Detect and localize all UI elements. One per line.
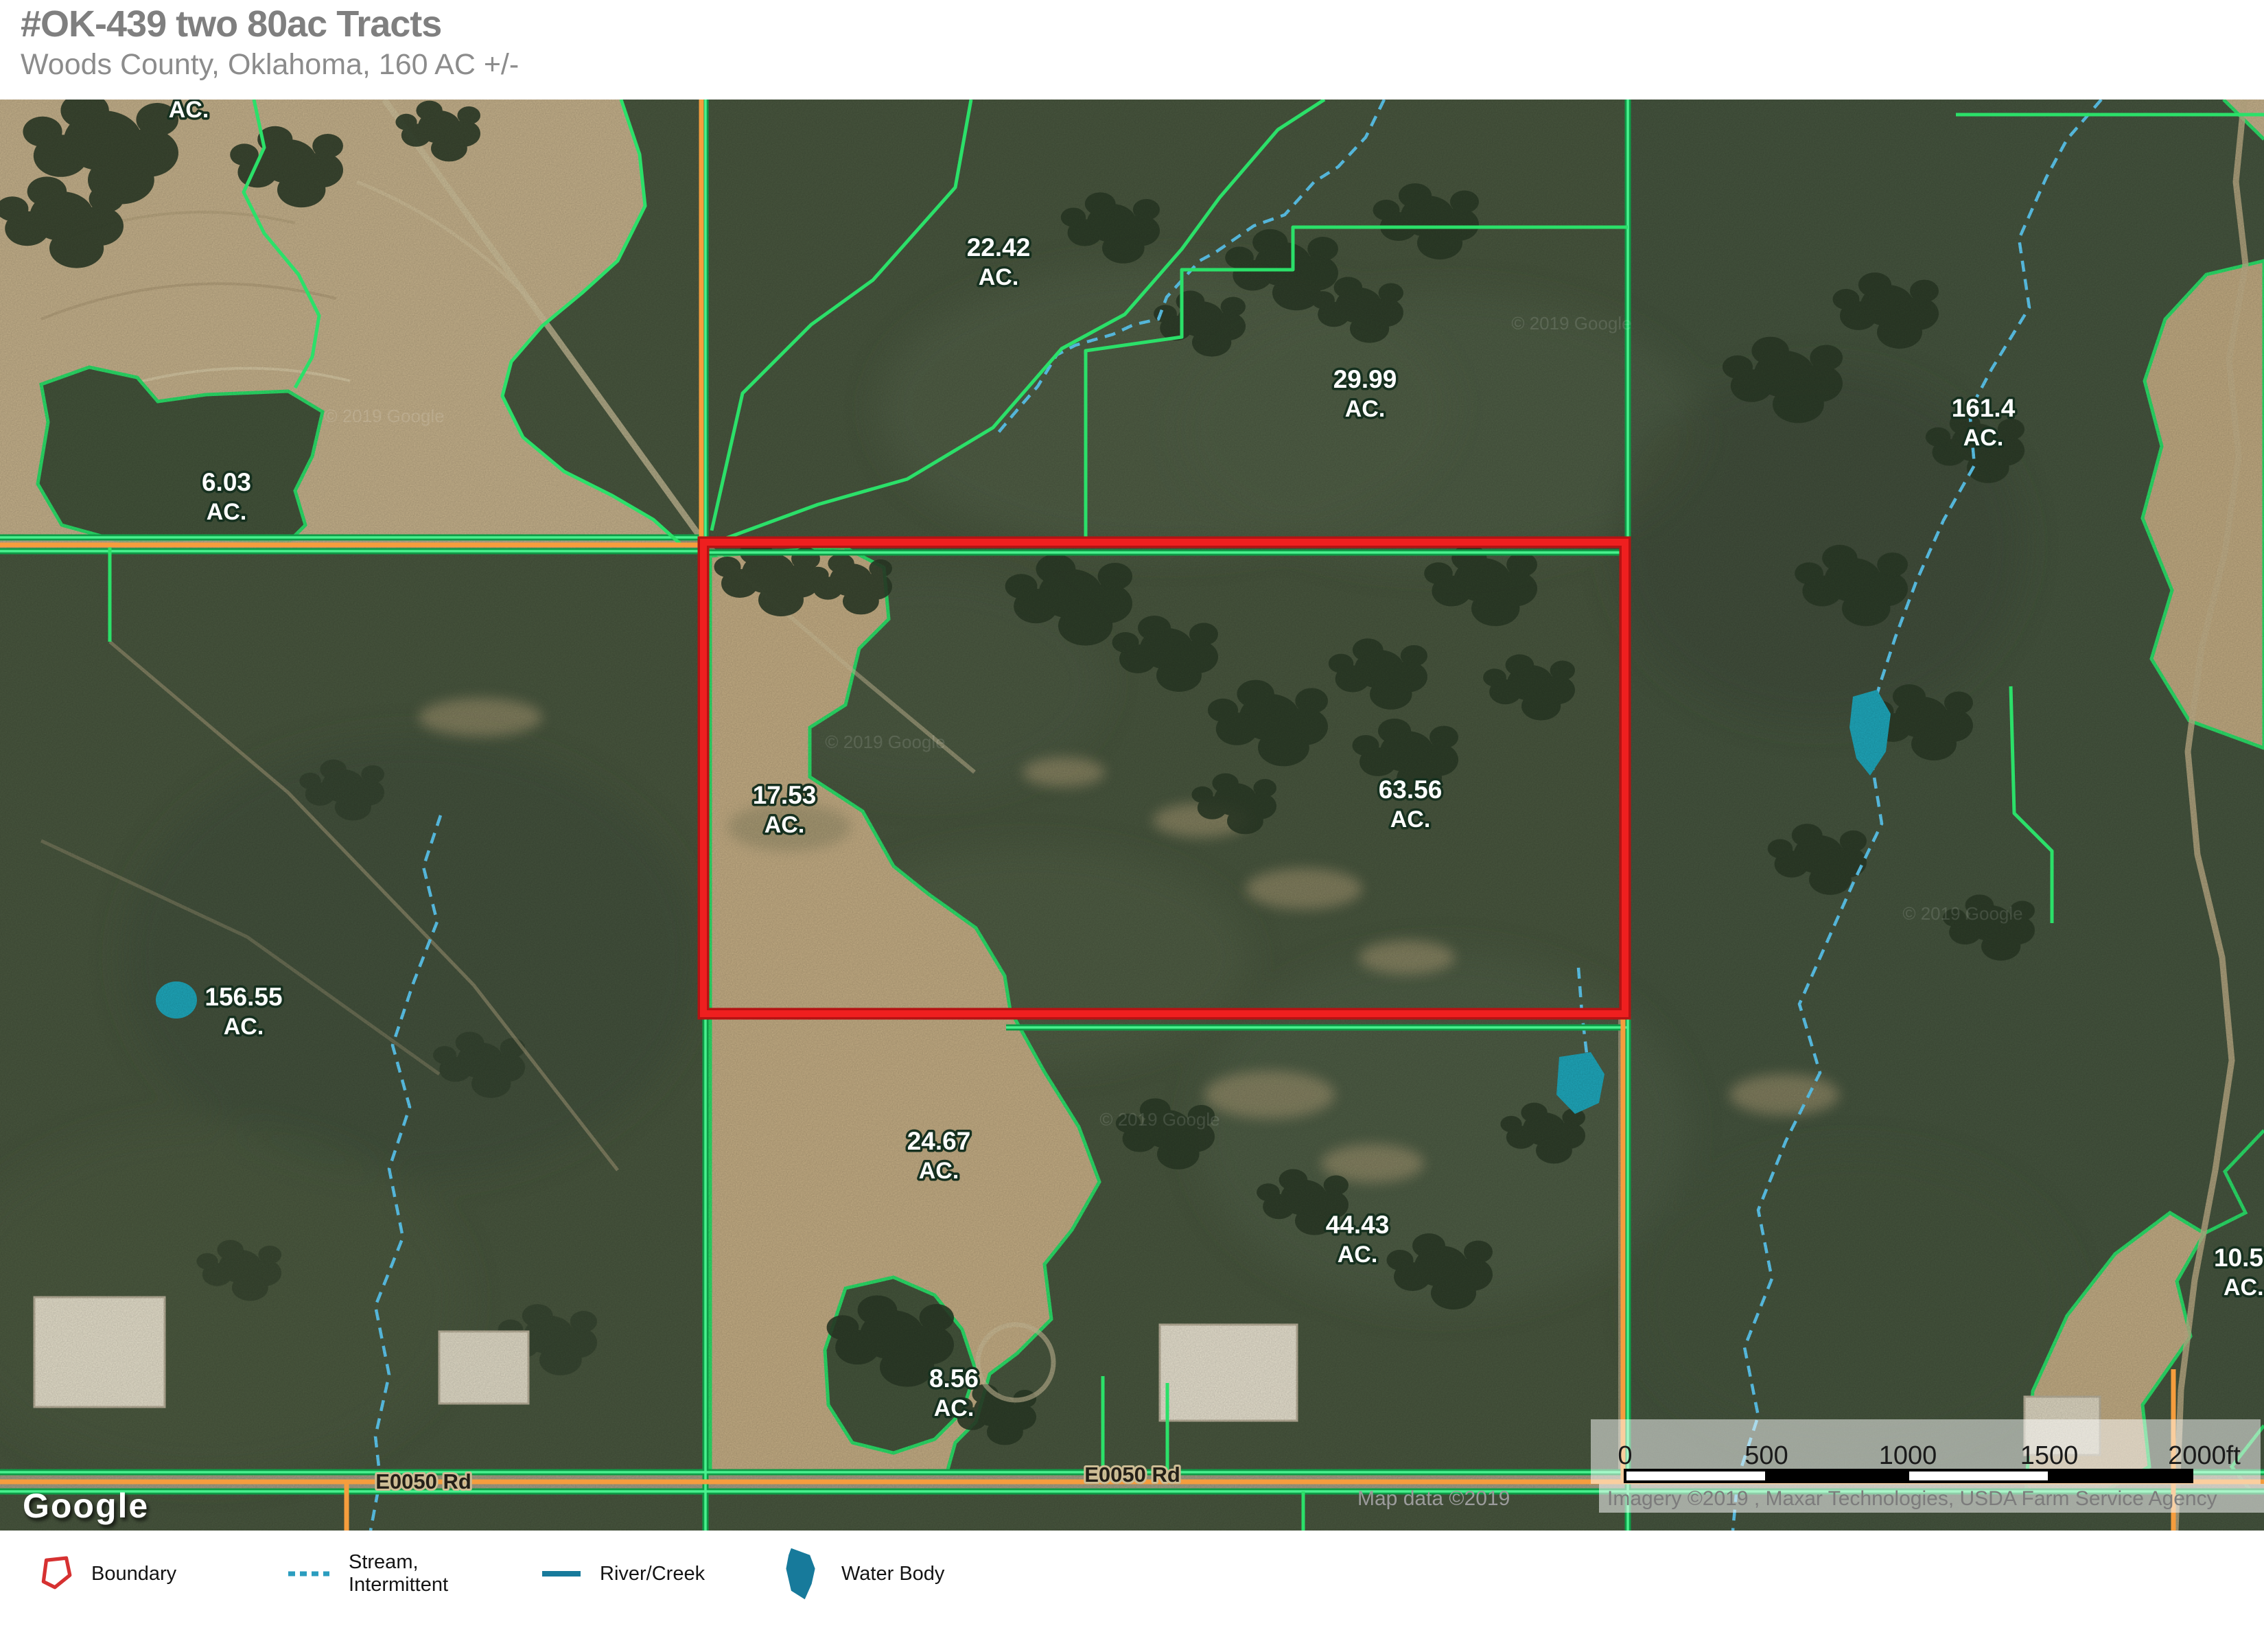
satellite-map: © 2019 Google © 2019 Google © 2019 Googl…	[0, 100, 2264, 1531]
legend-item-river: River/Creek	[541, 1543, 705, 1605]
acreage-label: 6.03	[202, 468, 251, 496]
svg-text:AC.: AC.	[934, 1395, 975, 1421]
acreage-label: 22.42	[967, 233, 1031, 261]
water-body-icon	[781, 1546, 824, 1601]
map-canvas: © 2019 Google © 2019 Google © 2019 Googl…	[0, 100, 2264, 1531]
svg-text:AC.: AC.	[1338, 1242, 1378, 1268]
acreage-label: 44.43	[1326, 1211, 1390, 1239]
svg-text:1500: 1500	[2020, 1441, 2079, 1470]
attribution-map-data: Map data ©2019	[1357, 1487, 1510, 1510]
svg-text:AC.: AC.	[765, 812, 805, 838]
acreage-label: 63.56	[1379, 776, 1443, 804]
svg-text:2000ft: 2000ft	[2168, 1441, 2241, 1470]
boundary-icon	[38, 1555, 73, 1592]
svg-text:© 2019 Google: © 2019 Google	[825, 732, 945, 752]
stream-intermittent-icon	[287, 1570, 331, 1578]
legend-item-boundary: Boundary	[38, 1543, 176, 1605]
attribution-imagery: Imagery ©2019 , Maxar Technologies, USDA…	[1607, 1487, 2217, 1510]
header: #OK-439 two 80ac Tracts Woods County, Ok…	[21, 3, 519, 84]
svg-text:AC.: AC.	[1963, 425, 2004, 451]
acreage-label: 24.67	[907, 1127, 971, 1155]
svg-text:AC.: AC.	[1390, 806, 1431, 833]
svg-text:AC.: AC.	[2224, 1275, 2264, 1301]
legend: Boundary Stream, Intermittent River/Cree…	[0, 1543, 2264, 1605]
river-creek-icon	[541, 1570, 582, 1578]
svg-text:AC.: AC.	[1345, 396, 1386, 422]
legend-label-boundary: Boundary	[91, 1563, 176, 1585]
svg-text:500: 500	[1744, 1441, 1788, 1470]
acreage-label-partial: AC.	[169, 100, 209, 123]
legend-label-stream: Stream, Intermittent	[349, 1551, 448, 1596]
svg-text:© 2019 Google: © 2019 Google	[1511, 313, 1631, 334]
acreage-label: 29.99	[1333, 365, 1397, 393]
map-attribution: Map data ©2019 Imagery ©2019 , Maxar Tec…	[1357, 1484, 2264, 1513]
svg-text:© 2019 Google: © 2019 Google	[324, 406, 444, 426]
acreage-label: 17.53	[753, 781, 817, 809]
road-label: E0050 Rd	[1084, 1463, 1180, 1487]
page: { "header": { "title": "#OK-439 two 80ac…	[0, 0, 2264, 1652]
noise-overlay	[0, 100, 2264, 1531]
google-logo: Google	[23, 1487, 149, 1525]
acreage-label: 8.56	[929, 1364, 979, 1393]
legend-item-water-body: Water Body	[781, 1543, 944, 1605]
svg-text:0: 0	[1618, 1441, 1632, 1470]
svg-text:© 2019 Google: © 2019 Google	[1099, 1109, 1219, 1130]
svg-text:AC.: AC.	[979, 264, 1019, 290]
acreage-label: 156.55	[205, 983, 282, 1011]
legend-label-water-body: Water Body	[841, 1563, 944, 1585]
legend-item-stream: Stream, Intermittent	[287, 1543, 448, 1605]
acreage-label: 10.5	[2214, 1244, 2263, 1272]
svg-text:AC.: AC.	[207, 499, 247, 525]
svg-text:1000: 1000	[1879, 1441, 1937, 1470]
acreage-label: 161.4	[1952, 394, 2016, 422]
svg-text:AC.: AC.	[919, 1158, 959, 1184]
scale-bar: 0 500 1000 1500 2000ft	[1591, 1419, 2261, 1484]
svg-text:© 2019 Google: © 2019 Google	[1902, 903, 2022, 924]
page-subtitle: Woods County, Oklahoma, 160 AC +/-	[21, 45, 519, 84]
legend-label-river: River/Creek	[600, 1563, 705, 1585]
page-title: #OK-439 two 80ac Tracts	[21, 3, 519, 45]
road-label: E0050 Rd	[375, 1469, 471, 1493]
svg-text:AC.: AC.	[224, 1014, 264, 1040]
